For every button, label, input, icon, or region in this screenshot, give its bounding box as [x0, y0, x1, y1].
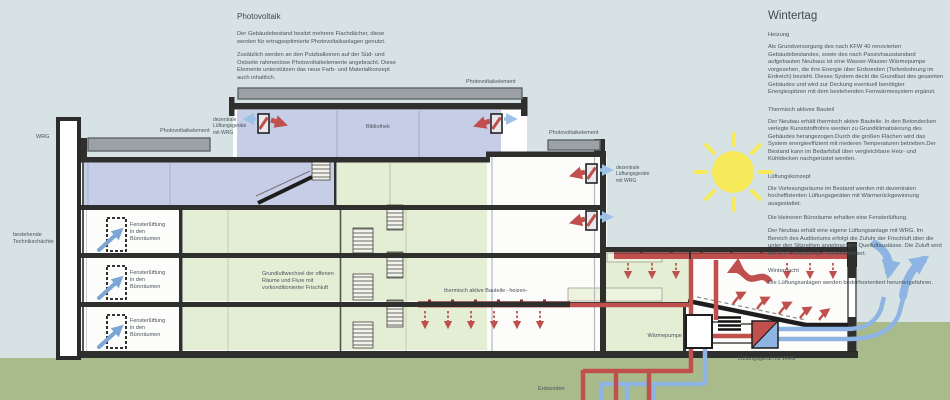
energy-concept-diagram: Photovoltaik Der Gebäudebestand besitzt … [0, 0, 950, 400]
technical-shaft [58, 119, 79, 358]
photovoltaik-text-block: Photovoltaik Der Gebäudebestand besitzt … [237, 12, 402, 88]
dezentral-label: dezentrale Lüftungsgeräte mit WRG [213, 117, 251, 136]
erdsonden-label: Erdsonden [538, 386, 565, 393]
lueftung-paragraph: Die Vorlesungsräume im Bestand werden mi… [768, 186, 944, 209]
wintertag-text-block: Wintertag Heizung Als Grundversorgung de… [768, 10, 944, 294]
fensterlueftung-label: Fensterlüftung in den Büroräumen [130, 222, 164, 243]
lueftung-paragraph: Die kleineren Büroräume erhalten eine Fe… [768, 215, 944, 223]
thermisch-paragraph: Der Neubau erhält thermisch aktive Baute… [768, 119, 944, 164]
wintertag-title: Wintertag [768, 10, 944, 22]
ahu-wrg-unit [752, 321, 778, 348]
pv-element-label: Photovoltaikelement [549, 130, 599, 137]
dezentral-label: dezentrale Lüftungsgeräte mit WRG [616, 165, 656, 184]
pv-element-label: Photovoltaikelement [466, 79, 516, 86]
lueftung-heading: Lüftungskonzept [768, 174, 944, 180]
heizung-heading: Heizung [768, 32, 944, 38]
photovoltaik-title: Photovoltaik [237, 12, 402, 21]
photovoltaik-paragraph: Der Gebäudebestand besitzt mehrere Flach… [237, 31, 402, 46]
sun-icon [695, 134, 771, 210]
photovoltaik-paragraph: Zusätzlich werden an den Putzbalkonen au… [237, 52, 402, 82]
fensterlueftung-label: Fensterlüftung in den Büroräumen [130, 270, 164, 291]
grundluftwechsel-label: Grundluftwechsel der offenen Räume und F… [262, 271, 334, 292]
fensterlueftung-label: Fensterlüftung in den Büroräumen [130, 318, 164, 339]
technikschaechte-label: bestehende Technikschächte [13, 232, 61, 246]
lueftung-paragraph: Der Neubau erhält eine eigene Lüftungsan… [768, 228, 944, 258]
heat-pump [686, 315, 712, 348]
thermisch-bauteile-label: thermisch aktive Bauteile [444, 288, 505, 295]
bibliothek-label: Bibliothek [366, 124, 390, 131]
wrg-label: WRG [36, 134, 49, 141]
heizen-label: - heizen- [506, 288, 527, 295]
heizung-paragraph: Als Grundversorgung des nach KFW 40 reno… [768, 44, 944, 97]
winternacht-paragraph: Die Lüftungsanlagen werden bedarfsorient… [768, 280, 944, 288]
pv-element-label: Photovoltaikelement [160, 128, 210, 135]
waermepumpe-label: Wärmepumpe [638, 333, 682, 340]
thermisch-heading: Thermisch aktives Bauteil [768, 107, 944, 113]
winternacht-heading: Winternacht [768, 268, 944, 274]
lueftungsgeraet-label: Lüftungsgerät mit WRG [738, 356, 795, 363]
